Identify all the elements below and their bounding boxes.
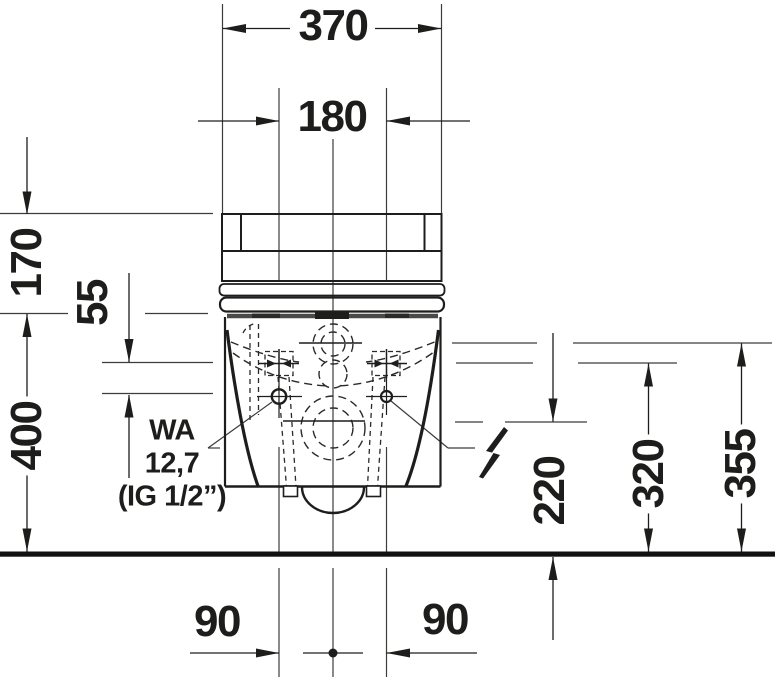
floor-line bbox=[0, 552, 775, 557]
dim-label-55: 55 bbox=[71, 275, 115, 331]
dim-label-170: 170 bbox=[5, 224, 49, 303]
dim-label-320: 320 bbox=[627, 435, 671, 514]
extension-lines bbox=[0, 4, 772, 677]
wa-label: WA bbox=[118, 415, 226, 448]
cover-plate-strip bbox=[220, 284, 445, 296]
dim-label-355: 355 bbox=[719, 425, 763, 504]
left-bolt-foot bbox=[284, 486, 298, 497]
dim-label-90-right: 90 bbox=[417, 598, 473, 642]
right-bolt-foot bbox=[367, 486, 381, 497]
dim-label-400: 400 bbox=[5, 397, 49, 476]
technical-drawing-linework bbox=[0, 0, 775, 677]
centre-reference-dot bbox=[329, 649, 338, 658]
seat-lid-strip bbox=[220, 298, 444, 312]
dim-label-90-left: 90 bbox=[189, 600, 245, 644]
wc-dimension-drawing: 370 180 170 55 400 220 320 355 90 90 WA … bbox=[0, 0, 775, 677]
cistern-outline bbox=[222, 214, 442, 281]
dimension-lines bbox=[27, 29, 742, 654]
dim-label-180: 180 bbox=[293, 95, 372, 139]
wa-size-label: 12,7 bbox=[118, 448, 226, 481]
high-voltage-icon bbox=[479, 427, 508, 479]
dim-label-220: 220 bbox=[528, 452, 572, 531]
dim-label-370: 370 bbox=[294, 4, 373, 48]
dimension-arrowheads bbox=[23, 24, 747, 658]
wa-thread-label: (IG 1/2”) bbox=[118, 481, 226, 514]
water-connection-annotation: WA 12,7 (IG 1/2”) bbox=[118, 415, 226, 514]
